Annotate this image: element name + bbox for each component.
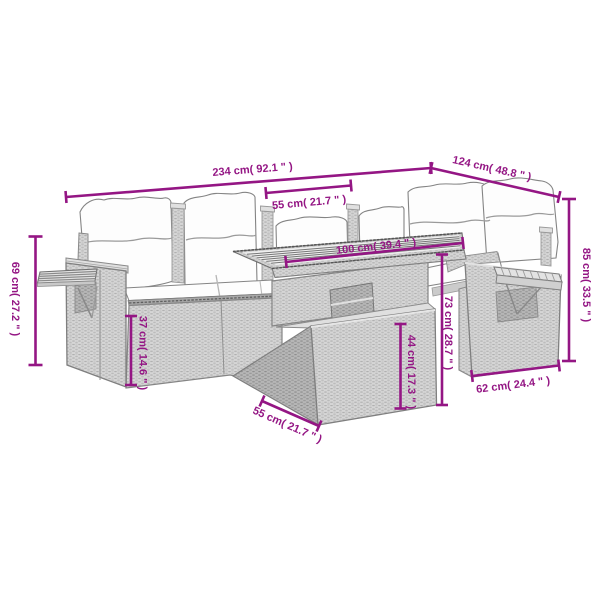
- svg-text:44 cm( 17.3 " ): 44 cm( 17.3 " ): [405, 335, 417, 410]
- svg-text:85 cm( 33.5 " ): 85 cm( 33.5 " ): [580, 248, 592, 323]
- svg-text:69 cm( 27.2 " ): 69 cm( 27.2 " ): [9, 262, 21, 337]
- svg-text:37 cm( 14.6 " ): 37 cm( 14.6 " ): [137, 316, 149, 391]
- svg-text:73 cm( 28.7 " ): 73 cm( 28.7 " ): [442, 296, 454, 371]
